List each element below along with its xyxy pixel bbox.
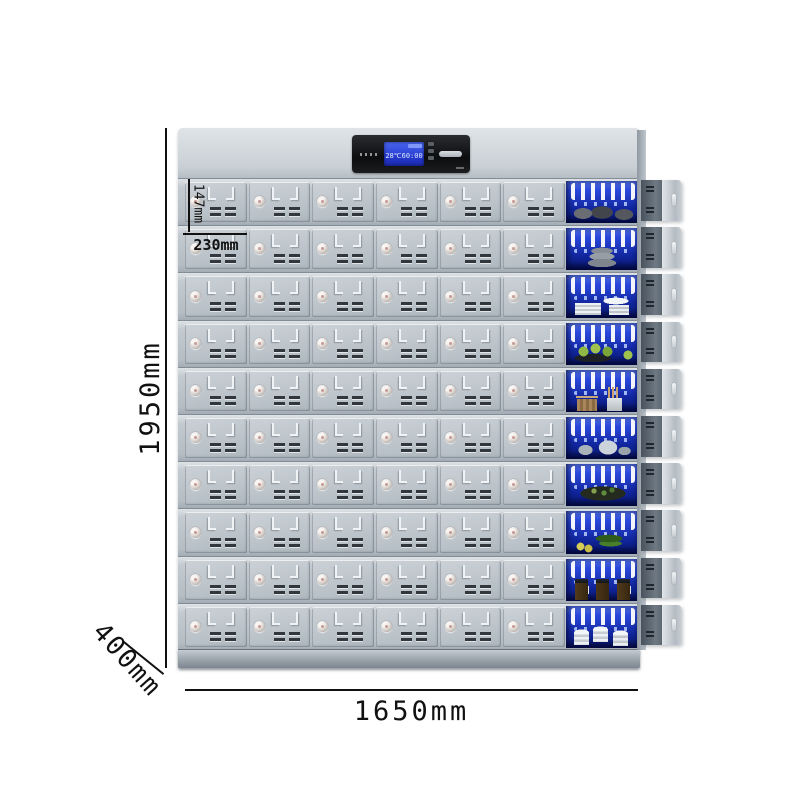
vent-slots-icon <box>646 584 654 592</box>
dimension-label-cell-width: 230mm <box>181 236 251 254</box>
cabinet-row <box>178 320 640 367</box>
compartment-door <box>376 418 438 458</box>
compartment-door <box>312 324 374 364</box>
compartment-door <box>185 465 247 505</box>
open-door-panel <box>641 180 681 221</box>
lock-icon <box>445 527 456 538</box>
lock-icon <box>508 196 519 207</box>
vent-slots-icon <box>210 443 236 452</box>
vent-slots-icon <box>528 349 554 358</box>
compartment-door <box>440 229 502 269</box>
lock-icon <box>317 527 328 538</box>
lock-icon <box>445 385 456 396</box>
vent-slots-icon <box>528 490 554 499</box>
handle-recess-icon <box>399 376 425 389</box>
vent-slots-icon <box>274 302 300 311</box>
vent-slots-icon <box>210 538 236 547</box>
handle-recess-icon <box>335 281 361 294</box>
handle-recess-icon <box>399 565 425 578</box>
compartment-door <box>440 607 502 647</box>
handle-recess-icon <box>526 376 552 389</box>
panel-button-icon <box>428 149 434 153</box>
vent-slots-icon <box>210 490 236 499</box>
open-door-outer-edge <box>662 510 681 551</box>
handle-recess-icon <box>335 423 361 436</box>
open-compartment-uv <box>566 275 640 317</box>
lock-icon <box>508 574 519 585</box>
handle-recess-icon <box>335 565 361 578</box>
vent-slots-icon <box>401 490 427 499</box>
open-door-panel <box>641 463 681 504</box>
lock-icon <box>445 574 456 585</box>
compartment-door <box>185 512 247 552</box>
lock-icon <box>317 479 328 490</box>
dimension-label-cell-height: 147mm <box>191 172 206 236</box>
vent-slots-icon <box>528 302 554 311</box>
compartment-door <box>376 512 438 552</box>
lock-icon <box>445 432 456 443</box>
handle-recess-icon <box>399 423 425 436</box>
vent-slots-icon <box>210 302 236 311</box>
lock-icon <box>190 385 201 396</box>
vent-slots-icon <box>646 207 654 215</box>
handle-recess-icon <box>463 234 489 247</box>
open-door-panel <box>641 274 681 315</box>
lock-icon <box>190 291 201 302</box>
compartment-door <box>503 371 565 411</box>
lock-icon <box>317 243 328 254</box>
compartment-door <box>249 324 311 364</box>
open-door-inner-face <box>641 416 662 457</box>
vent-slots-icon <box>465 538 491 547</box>
vent-slots-icon <box>646 233 654 241</box>
compartment-contents <box>569 529 637 553</box>
vent-slots-icon <box>465 632 491 641</box>
compartment-door <box>185 607 247 647</box>
open-door-outer-edge <box>662 322 681 363</box>
lock-icon <box>445 291 456 302</box>
vent-slots-icon <box>528 254 554 263</box>
vent-slots-icon <box>274 207 300 216</box>
handle-recess-icon <box>526 565 552 578</box>
vent-slots-icon <box>646 490 654 498</box>
lock-icon <box>381 196 392 207</box>
handle-recess-icon <box>463 470 489 483</box>
handle-recess-icon <box>399 517 425 530</box>
vent-slots-icon <box>465 490 491 499</box>
vent-slots-icon <box>528 443 554 452</box>
vent-slots-icon <box>337 302 363 311</box>
panel-brand-mark <box>456 167 464 169</box>
vent-slots-icon <box>646 443 654 451</box>
vent-slots-icon <box>337 632 363 641</box>
vent-slots-icon <box>401 302 427 311</box>
vent-slots-icon <box>401 443 427 452</box>
compartment-door <box>503 276 565 316</box>
compartment-contents <box>569 293 637 317</box>
open-door-outer-edge <box>662 180 681 221</box>
vent-slots-icon <box>401 632 427 641</box>
compartment-door <box>312 418 374 458</box>
compartment-door <box>440 512 502 552</box>
handle-recess-icon <box>526 612 552 625</box>
cabinet-row <box>178 367 640 414</box>
compartment-door <box>376 229 438 269</box>
compartment-door <box>185 324 247 364</box>
handle-recess-icon <box>335 470 361 483</box>
open-door-outer-edge <box>662 274 681 315</box>
vent-slots-icon <box>465 585 491 594</box>
door-grip-icon <box>672 430 676 442</box>
handle-recess-icon <box>399 234 425 247</box>
open-door-outer-edge <box>662 227 681 268</box>
open-door-panel <box>641 605 681 646</box>
handle-recess-icon <box>526 423 552 436</box>
vent-slots-icon <box>274 443 300 452</box>
vent-slots-icon <box>465 396 491 405</box>
handle-recess-icon <box>335 376 361 389</box>
compartment-contents <box>569 387 637 411</box>
handle-recess-icon <box>526 470 552 483</box>
vent-slots-icon <box>646 375 654 383</box>
compartment-contents <box>569 198 637 222</box>
lcd-status-bar <box>408 144 422 148</box>
compartment-door <box>249 607 311 647</box>
vent-slots-icon <box>401 254 427 263</box>
lock-icon <box>190 621 201 632</box>
compartment-contents <box>569 434 637 458</box>
lock-icon <box>254 291 265 302</box>
open-door-panel <box>641 227 681 268</box>
vent-slots-icon <box>646 631 654 639</box>
door-grip-icon <box>672 383 676 395</box>
compartment-door <box>185 276 247 316</box>
compartment-door <box>440 560 502 600</box>
handle-recess-icon <box>208 329 234 342</box>
lock-icon <box>445 621 456 632</box>
door-grip-icon <box>672 478 676 490</box>
handle-recess-icon <box>272 281 298 294</box>
door-grip-icon <box>672 242 676 254</box>
vent-slots-icon <box>274 632 300 641</box>
lock-icon <box>317 385 328 396</box>
compartment-door <box>312 229 374 269</box>
handle-recess-icon <box>463 187 489 200</box>
lock-icon <box>381 432 392 443</box>
open-door-outer-edge <box>662 558 681 599</box>
open-door-outer-edge <box>662 369 681 410</box>
compartment-door <box>376 465 438 505</box>
handle-recess-icon <box>208 612 234 625</box>
control-panel: 28℃60:00 <box>352 135 470 173</box>
open-door-outer-edge <box>662 605 681 646</box>
compartment-door <box>249 512 311 552</box>
open-door-panel <box>641 369 681 410</box>
open-door-outer-edge <box>662 463 681 504</box>
vent-slots-icon <box>646 564 654 572</box>
open-compartment-uv <box>566 370 640 412</box>
open-compartment-uv <box>566 464 640 506</box>
open-door-panel <box>641 558 681 599</box>
handle-recess-icon <box>335 329 361 342</box>
dimension-line-width <box>185 689 638 691</box>
lock-icon <box>445 479 456 490</box>
vent-slots-icon <box>337 585 363 594</box>
open-door-panel <box>641 416 681 457</box>
lock-icon <box>254 243 265 254</box>
lock-icon <box>254 338 265 349</box>
vent-slots-icon <box>646 280 654 288</box>
cabinet-row <box>178 178 640 225</box>
open-door-inner-face <box>641 605 662 646</box>
vent-slots-icon <box>646 395 654 403</box>
compartment-door <box>440 276 502 316</box>
vent-slots-icon <box>274 349 300 358</box>
vent-slots-icon <box>401 207 427 216</box>
handle-recess-icon <box>526 281 552 294</box>
vent-slots-icon <box>646 348 654 356</box>
handle-recess-icon <box>208 423 234 436</box>
lock-icon <box>190 338 201 349</box>
vent-slots-icon <box>528 396 554 405</box>
lock-icon <box>254 621 265 632</box>
vent-slots-icon <box>401 585 427 594</box>
compartment-door <box>249 276 311 316</box>
compartment-door <box>249 418 311 458</box>
lock-icon <box>381 574 392 585</box>
handle-recess-icon <box>272 565 298 578</box>
open-door-outer-edge <box>662 416 681 457</box>
lock-icon <box>254 196 265 207</box>
lock-icon <box>317 196 328 207</box>
vent-slots-icon <box>337 490 363 499</box>
panel-buttons <box>428 142 434 160</box>
open-compartment-uv <box>566 511 640 553</box>
door-grip-icon <box>672 619 676 631</box>
handle-recess-icon <box>399 329 425 342</box>
compartment-door <box>503 560 565 600</box>
lock-icon <box>190 527 201 538</box>
compartment-door <box>376 324 438 364</box>
vent-slots-icon <box>465 443 491 452</box>
vent-slots-icon <box>646 254 654 262</box>
compartment-contents <box>569 623 637 647</box>
compartment-door <box>376 276 438 316</box>
vent-slots-icon <box>401 396 427 405</box>
lock-icon <box>254 574 265 585</box>
lock-icon <box>317 574 328 585</box>
vent-slots-icon <box>528 585 554 594</box>
lcd-display: 28℃60:00 <box>384 142 424 166</box>
lock-icon <box>508 243 519 254</box>
door-grip-icon <box>672 336 676 348</box>
handle-recess-icon <box>463 281 489 294</box>
open-door-inner-face <box>641 322 662 363</box>
cabinet-row <box>178 603 640 650</box>
vent-slots-icon <box>210 585 236 594</box>
handle-recess-icon <box>272 470 298 483</box>
handle-recess-icon <box>526 517 552 530</box>
compartment-door <box>503 418 565 458</box>
open-door-inner-face <box>641 463 662 504</box>
vent-slots-icon <box>465 349 491 358</box>
lock-icon <box>254 527 265 538</box>
panel-markings <box>360 153 380 156</box>
lock-icon <box>317 432 328 443</box>
vent-slots-icon <box>337 443 363 452</box>
vent-slots-icon <box>210 349 236 358</box>
vent-slots-icon <box>646 537 654 545</box>
vent-slots-icon <box>646 328 654 336</box>
vent-slots-icon <box>210 207 236 216</box>
cabinet-row <box>178 272 640 319</box>
lock-icon <box>445 196 456 207</box>
vent-slots-icon <box>274 254 300 263</box>
vent-slots-icon <box>528 632 554 641</box>
lock-icon <box>317 338 328 349</box>
lock-icon <box>508 338 519 349</box>
lock-icon <box>508 385 519 396</box>
cabinet-row <box>178 508 640 555</box>
compartment-door <box>249 560 311 600</box>
compartment-door <box>503 182 565 222</box>
open-compartment-uv <box>566 323 640 365</box>
lock-icon <box>381 479 392 490</box>
lock-icon <box>508 527 519 538</box>
handle-recess-icon <box>272 376 298 389</box>
vent-slots-icon <box>646 422 654 430</box>
compartment-contents <box>569 340 637 364</box>
vent-slots-icon <box>210 396 236 405</box>
lock-icon <box>381 621 392 632</box>
compartment-door <box>376 182 438 222</box>
lock-icon <box>508 479 519 490</box>
open-compartment-uv <box>566 417 640 459</box>
open-compartment-uv <box>566 228 640 270</box>
open-door-inner-face <box>641 180 662 221</box>
lock-icon <box>190 574 201 585</box>
cabinet-row <box>178 414 640 461</box>
handle-recess-icon <box>208 281 234 294</box>
vent-slots-icon <box>274 538 300 547</box>
vent-slots-icon <box>465 254 491 263</box>
vent-slots-icon <box>337 349 363 358</box>
handle-recess-icon <box>272 329 298 342</box>
vent-slots-icon <box>274 490 300 499</box>
compartment-door <box>503 512 565 552</box>
vent-slots-icon <box>401 538 427 547</box>
compartment-door <box>440 182 502 222</box>
lock-icon <box>508 291 519 302</box>
handle-recess-icon <box>526 329 552 342</box>
compartment-door <box>312 607 374 647</box>
handle-recess-icon <box>335 612 361 625</box>
handle-recess-icon <box>463 517 489 530</box>
open-door-panel <box>641 510 681 551</box>
compartment-door <box>376 560 438 600</box>
lock-icon <box>381 243 392 254</box>
vent-slots-icon <box>646 611 654 619</box>
compartment-door <box>312 276 374 316</box>
lock-icon <box>381 338 392 349</box>
dimension-label-depth: 400mm <box>82 613 171 707</box>
vent-slots-icon <box>646 301 654 309</box>
handle-recess-icon <box>463 565 489 578</box>
vent-slots-icon <box>337 254 363 263</box>
lock-icon <box>508 432 519 443</box>
lock-icon <box>445 243 456 254</box>
cabinet-base <box>178 649 640 668</box>
compartment-door <box>249 465 311 505</box>
compartment-door <box>440 371 502 411</box>
open-door-inner-face <box>641 510 662 551</box>
vent-slots-icon <box>337 207 363 216</box>
lock-icon <box>254 432 265 443</box>
handle-recess-icon <box>463 376 489 389</box>
open-door-panel <box>641 322 681 363</box>
lock-icon <box>445 338 456 349</box>
open-compartment-uv <box>566 559 640 601</box>
compartment-door <box>249 182 311 222</box>
vent-slots-icon <box>465 207 491 216</box>
door-grip-icon <box>672 194 676 206</box>
handle-recess-icon <box>208 470 234 483</box>
compartment-door <box>440 418 502 458</box>
cabinet-row <box>178 461 640 508</box>
handle-recess-icon <box>208 517 234 530</box>
compartment-contents <box>569 245 637 269</box>
lock-icon <box>381 291 392 302</box>
compartment-door <box>503 465 565 505</box>
vent-slots-icon <box>337 396 363 405</box>
lock-icon <box>254 385 265 396</box>
compartment-door <box>312 560 374 600</box>
lcd-temperature: 28℃ <box>385 152 401 160</box>
door-grip-icon <box>672 289 676 301</box>
handle-recess-icon <box>526 234 552 247</box>
handle-recess-icon <box>399 470 425 483</box>
lock-icon <box>381 385 392 396</box>
vent-slots-icon <box>337 538 363 547</box>
lock-icon <box>508 621 519 632</box>
handle-recess-icon <box>399 612 425 625</box>
handle-recess-icon <box>272 612 298 625</box>
lock-icon <box>190 432 201 443</box>
handle-recess-icon <box>335 187 361 200</box>
handle-recess-icon <box>272 423 298 436</box>
compartment-door <box>312 512 374 552</box>
compartment-door <box>440 465 502 505</box>
compartment-door <box>185 560 247 600</box>
vent-slots-icon <box>528 538 554 547</box>
lock-icon <box>254 479 265 490</box>
compartment-door <box>249 371 311 411</box>
compartment-contents <box>569 481 637 505</box>
compartment-door <box>249 229 311 269</box>
compartment-door <box>312 465 374 505</box>
cabinet-row <box>178 556 640 603</box>
handle-recess-icon <box>463 423 489 436</box>
open-door-inner-face <box>641 227 662 268</box>
handle-recess-icon <box>208 187 234 200</box>
handle-recess-icon <box>272 234 298 247</box>
compartment-door <box>440 324 502 364</box>
vent-slots-icon <box>528 207 554 216</box>
vent-slots-icon <box>646 516 654 524</box>
vent-slots-icon <box>210 254 236 263</box>
lock-icon <box>381 527 392 538</box>
handle-recess-icon <box>399 187 425 200</box>
